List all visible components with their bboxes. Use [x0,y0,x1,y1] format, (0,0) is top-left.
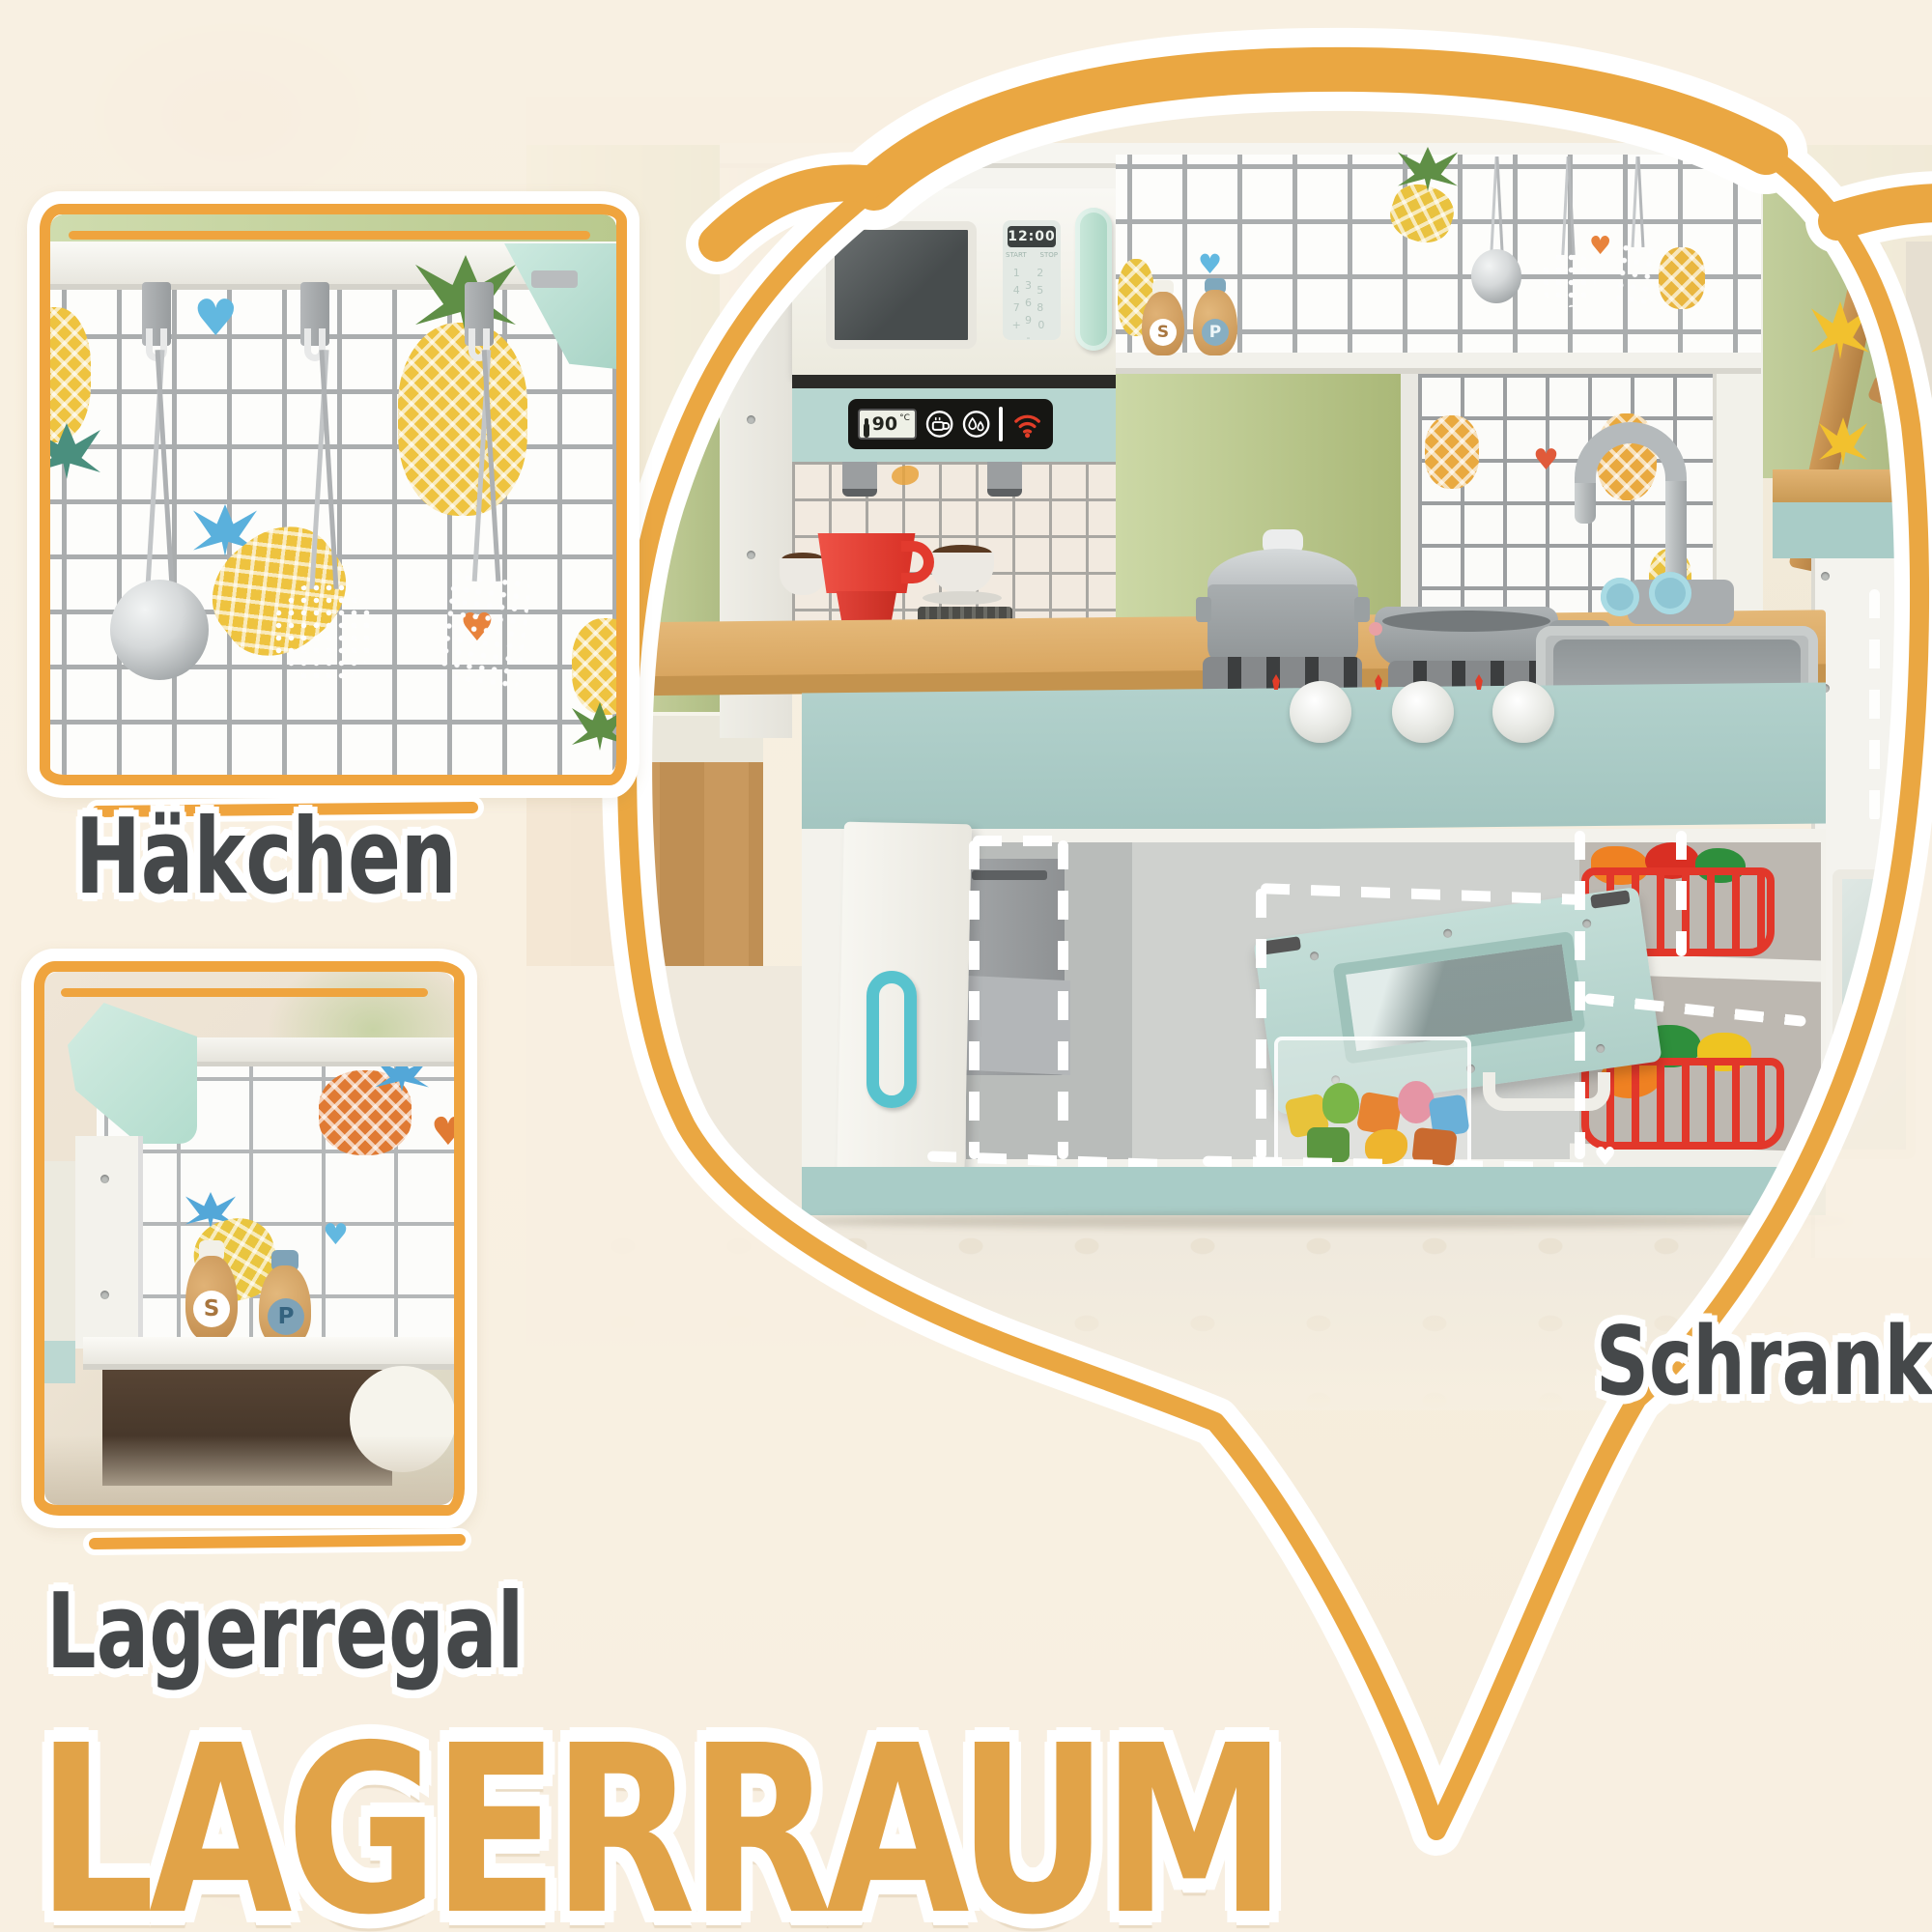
utensil-handle [482,350,501,582]
hanging-utensil-ladle [108,350,211,683]
salt-shaker: S [185,1240,238,1341]
hanging-utensil-spatula [437,350,533,697]
side-teal-blur [44,1341,75,1383]
inset-hooks-content: ♥ ♥ [50,214,616,775]
panel-screw [100,1291,109,1299]
shelf-label: Lagerregal [46,1580,524,1685]
heart-decal: ♥ [193,294,239,344]
swoosh-accent [1837,203,1932,221]
inset-shelf-photo: ♥ ♥ S P [21,949,477,1528]
skimmer-icon [272,582,375,684]
shelf-lower-board [83,1337,454,1370]
salt-label: S [193,1291,230,1327]
cabinet-label: Schrank [1596,1315,1932,1409]
spatula-icon [436,569,532,693]
bottom-blur-fade [44,1435,454,1505]
page-heading: LAGERRAUM [37,1715,1280,1932]
hanging-utensil-skimmer [270,350,377,688]
inset-shelf-content: ♥ ♥ S P [44,972,454,1505]
shelf-left-pillar [75,1136,143,1349]
pineapple-decal [319,1070,412,1155]
panel-screw [100,1175,109,1183]
inset-hooks-photo: ♥ ♥ [27,191,639,798]
ladle-icon [110,580,209,680]
bracket-hinge [531,270,578,288]
pepper-shaker: P [259,1250,311,1347]
product-marketing-image: 12:00 START STOP 1 2 3 4 5 6 7 8 9 + 0 -… [0,0,1932,1932]
shelf-top-board [187,1037,454,1066]
pepper-label: P [268,1298,304,1335]
utensil-handle [155,350,174,587]
side-cabinet-blur [44,1161,75,1341]
hooks-label: Häkchen [75,806,457,910]
heart-decal: ♥ [431,1113,454,1151]
hand-drawn-line [69,231,590,240]
heart-decal: ♥ [323,1221,349,1250]
hand-drawn-line [61,988,428,997]
utensil-handle [319,350,338,589]
pineapple-decal [572,618,616,715]
